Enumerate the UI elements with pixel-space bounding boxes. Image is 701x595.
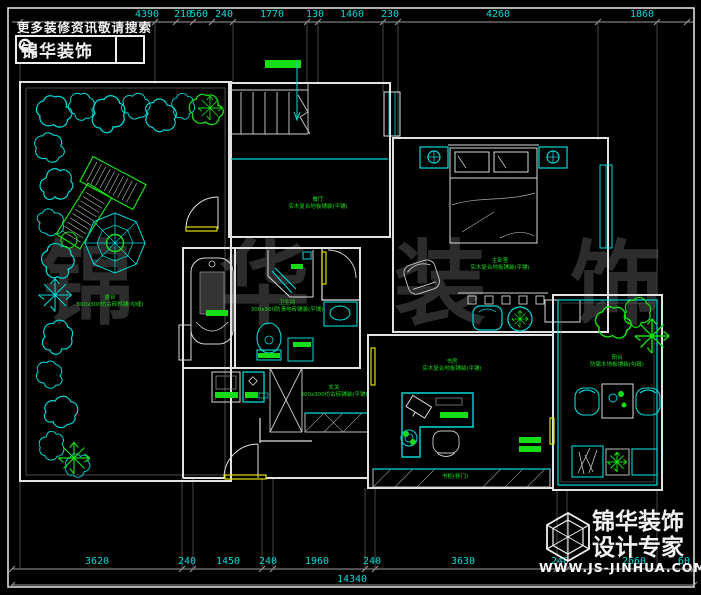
leisure-balcony bbox=[550, 295, 669, 490]
switch-bar bbox=[519, 437, 541, 443]
header-logo-box: 锦华装饰 bbox=[15, 35, 145, 64]
room-label-hallway: 玄关300x300仿古砖铺装(平铺) bbox=[300, 385, 367, 399]
floor-drain bbox=[288, 338, 313, 361]
computer-monitor bbox=[403, 395, 431, 422]
pillow bbox=[494, 152, 528, 172]
parasol-umbrella bbox=[85, 213, 145, 273]
label-bar bbox=[215, 392, 238, 398]
door-threshold bbox=[371, 348, 375, 385]
room-label-dining: 餐厅实木复合地板铺装(平铺) bbox=[288, 197, 347, 211]
door-arc bbox=[328, 250, 356, 278]
stair-guide-line bbox=[294, 62, 300, 120]
wardrobe-doors bbox=[458, 293, 548, 304]
desk-plant bbox=[401, 430, 417, 446]
window bbox=[600, 165, 612, 248]
dim-label: 560 bbox=[190, 9, 208, 20]
balcony-plants bbox=[595, 297, 669, 353]
flue-marker bbox=[265, 60, 301, 68]
door-threshold bbox=[186, 227, 217, 231]
switch-bar bbox=[519, 446, 541, 452]
planter-box bbox=[632, 449, 657, 475]
toilet bbox=[257, 323, 281, 360]
room-label-balcony: 阳台防腐木地板铺装(勾缝) bbox=[590, 355, 644, 369]
keyboard bbox=[436, 398, 462, 405]
terrace bbox=[20, 82, 231, 482]
label-bar bbox=[258, 353, 280, 358]
dim-label: 4260 bbox=[486, 9, 510, 20]
label-bar bbox=[206, 310, 228, 316]
dim-label: 1770 bbox=[260, 9, 284, 20]
room-label-study: 书房实木复合地板铺装(平铺) bbox=[422, 359, 481, 373]
dim-label: 1450 bbox=[216, 556, 240, 567]
dim-label: 1860 bbox=[630, 9, 654, 20]
shoe-cabinet bbox=[270, 368, 302, 432]
nightstand bbox=[539, 147, 567, 168]
desk bbox=[402, 393, 473, 457]
room-label-terrace: 露台300x300仿古砖斜铺(勾缝) bbox=[76, 295, 143, 309]
dim-label: 1460 bbox=[340, 9, 364, 20]
terrace-door bbox=[186, 197, 218, 231]
dresser-stool bbox=[473, 306, 502, 330]
planter-box bbox=[606, 449, 629, 475]
room-label-master-bedroom: 主卧室实木复合地板铺装(平铺) bbox=[470, 258, 529, 272]
staircase bbox=[229, 83, 310, 134]
lounge-chairs bbox=[56, 157, 146, 249]
footer-website: WWW.JS-JINHUA.COM bbox=[539, 560, 701, 575]
room-label-bathroom: 卫生间300x300防滑地砖铺装(平铺) bbox=[251, 300, 324, 314]
footer-brand-text: 锦华装饰 bbox=[592, 509, 684, 535]
label-bar bbox=[245, 392, 258, 398]
magnifier-icon bbox=[117, 37, 143, 62]
dim-label: 240 bbox=[215, 9, 233, 20]
dim-total-label: 14340 bbox=[337, 574, 367, 585]
washing-machine bbox=[212, 372, 240, 402]
wall-pier bbox=[179, 325, 191, 360]
dim-label: 130 bbox=[306, 9, 324, 20]
study bbox=[368, 335, 553, 488]
label-bar bbox=[291, 264, 303, 269]
dim-label: 240 bbox=[178, 556, 196, 567]
room-label-bookcase: 书柜(移门) bbox=[442, 474, 468, 481]
bathtub bbox=[191, 258, 233, 344]
potted-plant bbox=[508, 307, 532, 331]
dim-label: 3630 bbox=[451, 556, 475, 567]
dim-label: 240 bbox=[259, 556, 277, 567]
hall-cabinet bbox=[305, 413, 368, 432]
pillow bbox=[455, 152, 489, 172]
double-bed bbox=[448, 145, 539, 243]
floorplan-canvas: 锦 华 装 饰 bbox=[0, 0, 701, 595]
dim-label: 3620 bbox=[85, 556, 109, 567]
dim-label: 230 bbox=[381, 9, 399, 20]
label-bar bbox=[293, 342, 311, 347]
balcony-chair bbox=[575, 388, 599, 415]
armchair bbox=[402, 258, 442, 296]
terrace-green-plants bbox=[58, 94, 223, 473]
desk-chair bbox=[433, 431, 459, 457]
dim-label: 240 bbox=[363, 556, 381, 567]
balcony-table bbox=[602, 384, 633, 418]
terrace-plants bbox=[31, 88, 198, 483]
washbasin bbox=[324, 302, 357, 326]
planter bbox=[572, 446, 603, 477]
water-heater-cabinet bbox=[243, 372, 268, 402]
dim-label: 1960 bbox=[305, 556, 329, 567]
nightstand bbox=[420, 147, 448, 168]
label-bar bbox=[440, 412, 468, 418]
shower-enclosure bbox=[268, 250, 313, 297]
cube-logo-icon bbox=[542, 510, 594, 564]
footer-subtitle-text: 设计专家 bbox=[592, 535, 684, 561]
header-tagline: 更多装修资讯敬请搜索 bbox=[17, 17, 152, 36]
